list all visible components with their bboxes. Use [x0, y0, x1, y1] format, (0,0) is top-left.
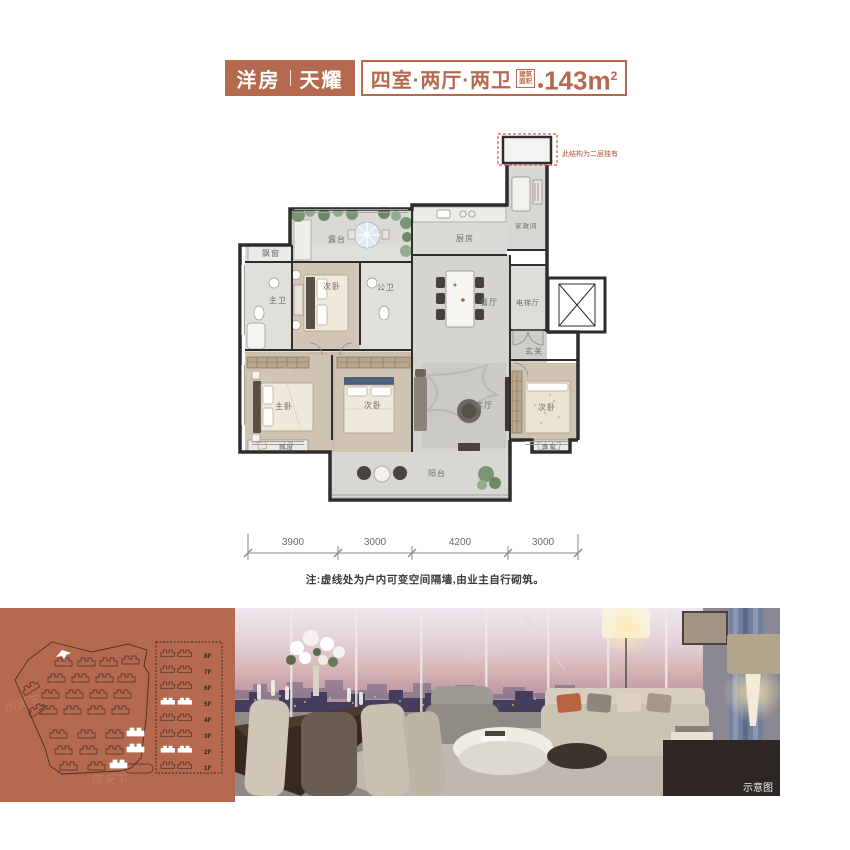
product-type: 洋房	[237, 64, 281, 93]
area-badge-line1: 建筑	[519, 71, 532, 78]
product-name: 天耀	[300, 64, 344, 93]
dining-chairs	[244, 699, 448, 796]
product-title: 洋房 天耀	[225, 60, 355, 96]
floor-7f: 7F	[204, 669, 212, 676]
label-housekeeping: 家政间	[515, 221, 538, 230]
floor-2f: 2F	[204, 749, 212, 756]
dim-3: 4200	[449, 537, 472, 548]
dot-icon	[538, 83, 543, 88]
label-bay-window-br: 飘窗	[542, 442, 557, 451]
site-panel: 房天下 房天下	[0, 608, 235, 802]
title-divider	[290, 70, 291, 86]
label-bay-window-top: 飘窗	[262, 248, 280, 258]
label-bedroom-center: 次卧	[364, 400, 382, 410]
area-value: 143m2	[544, 63, 617, 94]
floor-4f: 4F	[204, 717, 212, 724]
watermark-photo: 房天下	[465, 648, 501, 663]
area-badge-line2: 面积	[519, 78, 532, 85]
header: 洋房 天耀 四室·两厅·两卫 建筑 面积 143m2	[225, 60, 627, 96]
dim-1: 3900	[282, 537, 305, 548]
photo-caption: 示意图	[743, 781, 773, 794]
layout-text: 四室·两厅·两卫	[371, 64, 512, 93]
label-master-bath: 主卫	[269, 295, 287, 305]
coffee-table	[453, 727, 553, 775]
unit-spec: 四室·两厅·两卫 建筑 面积 143m2	[361, 60, 627, 96]
label-foyer: 玄关	[525, 346, 543, 356]
label-elevator-hall: 电梯厅	[516, 298, 540, 307]
label-bay-window-bl: 飘窗	[279, 442, 294, 451]
dimension-bar: 3900 3000 4200 3000	[232, 526, 622, 570]
label-master-bedroom: 主卧	[275, 401, 293, 411]
floor-5f: 5F	[204, 701, 212, 708]
page: 洋房 天耀 四室·两厅·两卫 建筑 面积 143m2	[0, 0, 850, 850]
label-bedroom-top: 次卧	[323, 281, 341, 291]
wall-art	[683, 612, 727, 644]
area-sup: 2	[611, 69, 618, 83]
label-living: 客厅	[475, 400, 493, 410]
label-bedroom-right: 次卧	[538, 402, 556, 412]
side-round-table	[547, 743, 607, 769]
floor-plan: 此结构为二层独有 飘窗 露台 次卧 主卫 公卫 厨房 家政间 餐厅 电梯厅 玄关…	[232, 125, 622, 515]
plan-note: 注:虚线处为户内可变空间隔墙,由业主自行砌筑。	[0, 572, 850, 587]
floor-6f: 6F	[204, 685, 212, 692]
dim-2: 3000	[364, 537, 387, 548]
floor-1f: 1F	[204, 765, 212, 772]
area-badge: 建筑 面积	[516, 69, 535, 88]
watermark-site-2: 房天下	[92, 772, 128, 787]
floor-8f: 8F	[204, 653, 212, 660]
interior-photo: 房天下 示意图	[235, 608, 780, 796]
label-dining: 餐厅	[480, 298, 498, 307]
structure-annotation: 此结构为二层独有	[562, 149, 618, 158]
label-terrace: 露台	[328, 234, 346, 244]
dim-4: 3000	[532, 537, 555, 548]
floor-3f: 3F	[204, 733, 212, 740]
label-kitchen: 厨房	[456, 233, 474, 243]
label-public-bath: 公卫	[377, 283, 395, 292]
label-balcony: 阳台	[428, 468, 446, 478]
